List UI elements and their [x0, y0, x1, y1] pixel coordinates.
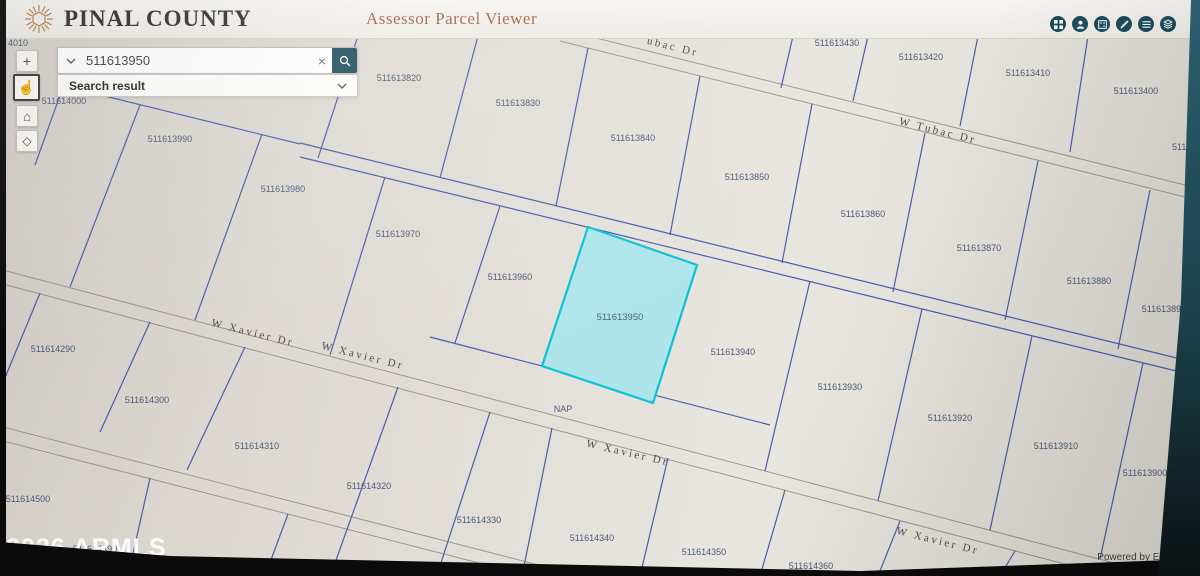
parcel-boundary-line [1070, 36, 1088, 152]
parcel-boundary-line [2, 293, 40, 385]
monitor-bezel-left [0, 0, 6, 576]
search-result-dropdown[interactable]: Search result [57, 74, 358, 97]
search-result-label: Search result [69, 79, 337, 93]
parcel-label: 511613920 [928, 413, 972, 423]
zoom-in-button[interactable]: + [16, 50, 38, 72]
parcel-boundary-line [878, 309, 922, 501]
search-box: × [57, 47, 358, 74]
parcel-label: 511613820 [377, 73, 421, 83]
parcel-label: 511614300 [125, 395, 169, 405]
clear-search-icon[interactable]: × [312, 53, 332, 69]
parcel-label: 511613900 [1123, 468, 1167, 478]
parcel-label: 511614000 [42, 96, 86, 106]
parcel-label: 511614340 [570, 533, 614, 543]
parcel-boundary-line [100, 322, 150, 432]
app-header: PINAL COUNTY Assessor Parcel Viewer [0, 0, 1200, 39]
street-label: W Xavier Dr [895, 525, 980, 557]
parcel-boundary-line [760, 490, 785, 576]
parcel-boundary-line [300, 157, 1200, 378]
parcel-boundary-line [670, 76, 700, 235]
parcel-label: 511614330 [457, 515, 501, 525]
screen: 4010511614000511613990511613980511613970… [0, 0, 1200, 576]
header-widget-buttons [1050, 16, 1176, 32]
parcel-boundary-line [782, 104, 812, 263]
parcel-boundary-line [1005, 161, 1038, 320]
parcel-label: NAP [554, 404, 573, 414]
parcel-boundary-line [195, 134, 262, 320]
parcel-boundary-line [765, 281, 810, 471]
parcel-boundary-line [440, 36, 478, 178]
zoom-out-button[interactable]: ☝ [13, 74, 40, 101]
road-line [560, 29, 1200, 190]
parcel-label: 511613420 [899, 52, 943, 62]
parcel-boundary-line [556, 48, 588, 206]
parcel-boundary-line [1118, 190, 1150, 349]
home-button[interactable]: ⌂ [16, 105, 38, 127]
street-label: W Xavier Dr [210, 317, 295, 349]
parcel-label: 511613830 [496, 98, 540, 108]
legend-icon[interactable] [1138, 16, 1154, 32]
person-icon[interactable] [1072, 16, 1088, 32]
street-label: W Xavier Dr [320, 340, 405, 372]
highlighted-parcel-label: 511613950 [597, 312, 644, 323]
parcel-boundary-line [187, 347, 245, 470]
parcel-boundary-line [893, 133, 925, 292]
parcel-label: 511613430 [815, 38, 859, 48]
parcel-boundary-line [522, 428, 552, 576]
parcel-label: 511613840 [611, 133, 655, 143]
parcel-label: 511613980 [261, 184, 305, 194]
magnifier-icon [339, 55, 351, 67]
parcel-label: 511613890 [1142, 304, 1186, 314]
pinal-county-logo [24, 4, 54, 34]
parcel-boundary-line [1100, 363, 1143, 559]
parcel-boundary-line [438, 412, 490, 572]
parcel-boundary-line [335, 387, 398, 563]
parcel-label: 511613910 [1034, 441, 1078, 451]
parcel-label: 511613850 [725, 172, 769, 182]
search-input[interactable] [84, 53, 312, 68]
search-source-dropdown[interactable] [58, 48, 84, 73]
layers-icon[interactable] [1160, 16, 1176, 32]
parcel-boundary-line [70, 105, 140, 287]
parcel-boundary-line [781, 36, 793, 88]
parcel-boundary-line [990, 336, 1032, 530]
parcel-label: 511614500 [6, 494, 50, 504]
parcel-label: 511614350 [682, 547, 726, 557]
parcel-label: 511613400 [1114, 86, 1158, 96]
measure-icon[interactable] [1116, 16, 1132, 32]
chevron-down-icon [66, 58, 76, 64]
parcel-label: 511613860 [841, 209, 885, 219]
county-title: PINAL COUNTY [64, 6, 252, 32]
locate-button[interactable]: ◇ [16, 130, 38, 152]
chevron-down-icon [337, 83, 347, 89]
app-title: Assessor Parcel Viewer [366, 9, 537, 29]
parcel-label: 511613930 [818, 382, 862, 392]
street-label: W Tubac Dr [898, 116, 978, 147]
parcel-label: 511614360 [789, 561, 833, 571]
parcel-label: 511614310 [235, 441, 279, 451]
parcel-label: 511613990 [148, 134, 192, 144]
parcel-label: 511613940 [711, 347, 755, 357]
parcel-label: 511613410 [1006, 68, 1050, 78]
parcel-label: 511613960 [488, 272, 532, 282]
parcel-boundary-line [640, 458, 668, 576]
parcel-label: 511614290 [31, 344, 75, 354]
parcel-label: 4010 [8, 38, 28, 48]
basemap-icon[interactable] [1094, 16, 1110, 32]
apps-grid-icon[interactable] [1050, 16, 1066, 32]
parcel-label: 511613870 [957, 243, 1001, 253]
parcel-label: 511613970 [376, 229, 420, 239]
parcel-boundary-line [960, 36, 978, 126]
road-line [560, 41, 1200, 202]
hand-cursor-icon: ☝ [18, 79, 35, 96]
search-button[interactable] [332, 48, 357, 73]
parcel-label: 511613880 [1067, 276, 1111, 286]
parcel-boundary-line [330, 177, 385, 355]
parcel-label: 511614320 [347, 481, 391, 491]
